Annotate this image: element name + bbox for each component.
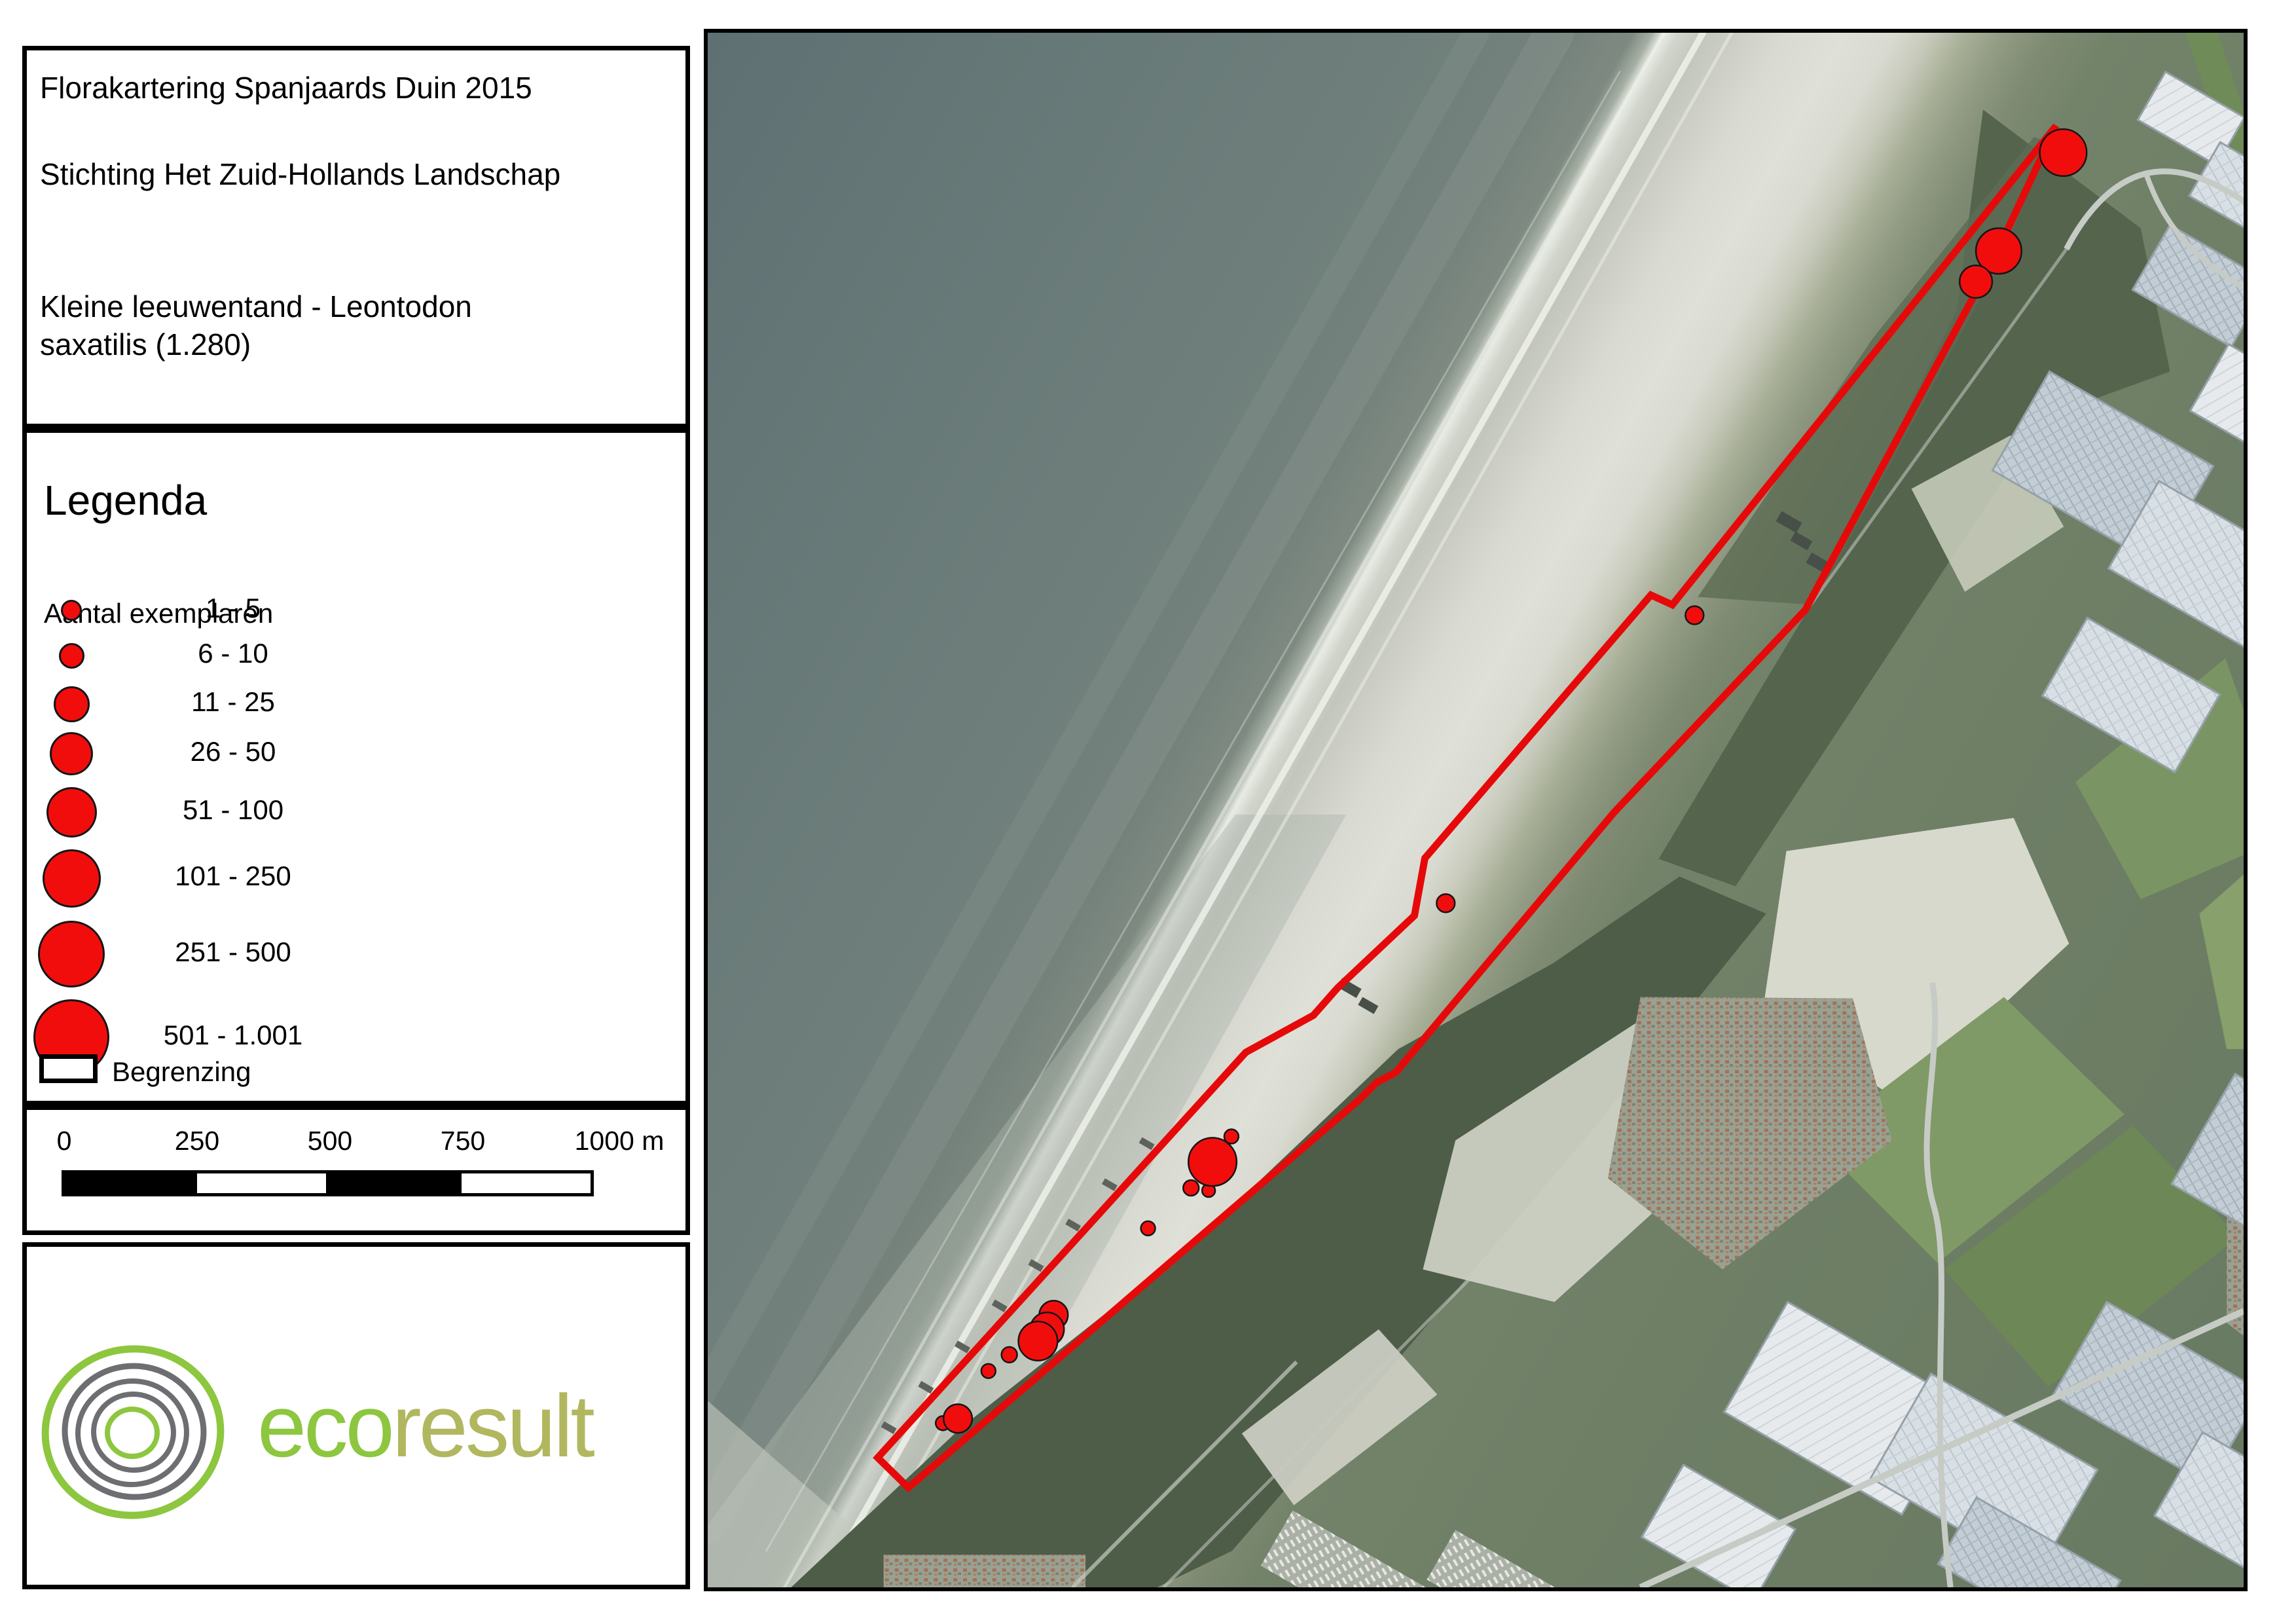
observation-dot <box>1002 1347 1017 1363</box>
logo-text-result: result <box>392 1376 592 1475</box>
observation-dot <box>1141 1221 1156 1236</box>
logo-box: ecoresult <box>22 1242 690 1589</box>
observation-dot <box>1959 265 1992 298</box>
observation-dot <box>1224 1130 1239 1144</box>
legend-dot <box>50 732 93 775</box>
legend-label: 101 - 250 <box>105 860 361 892</box>
map-sheet: Florakartering Spanjaards Duin 2015 Stic… <box>0 0 2296 1624</box>
project-title: Florakartering Spanjaards Duin 2015 <box>40 69 532 107</box>
legend-label: 51 - 100 <box>105 794 361 826</box>
legend-label: 501 - 1.001 <box>105 1020 361 1051</box>
legend-label: 11 - 25 <box>105 686 361 718</box>
organisation-name: Stichting Het Zuid-Hollands Landschap <box>40 155 560 193</box>
observation-dot <box>1436 894 1455 912</box>
scalebar-segment <box>326 1173 458 1193</box>
species-title-line2: saxatilis (1.280) <box>40 325 251 363</box>
observation-dot <box>1188 1137 1237 1186</box>
legend-dot <box>61 600 82 621</box>
legend-label: 26 - 50 <box>105 736 361 767</box>
scalebar-segment <box>458 1173 591 1193</box>
scalebar <box>62 1170 594 1196</box>
scalebar-segment <box>194 1173 326 1193</box>
legend-dot <box>43 849 101 908</box>
legend-dot <box>54 686 90 722</box>
boundary-label: Begrenzing <box>112 1056 251 1088</box>
observation-dot <box>981 1364 996 1378</box>
scalebar-tick-label: 0 <box>57 1126 72 1156</box>
legend-dot <box>59 643 84 669</box>
scalebar-segment <box>65 1173 194 1193</box>
observation-dot <box>1183 1180 1199 1196</box>
ecoresult-logo-text: ecoresult <box>257 1375 592 1477</box>
observation-dot <box>1019 1321 1058 1361</box>
observation-dot <box>943 1404 972 1433</box>
legend-dot <box>46 787 97 838</box>
scalebar-tick-label: 1000 m <box>575 1126 665 1156</box>
legend-label: 251 - 500 <box>105 936 361 968</box>
legend-label: 1 - 5 <box>105 593 361 624</box>
species-title-line1: Kleine leeuwentand - Leontodon <box>40 287 472 325</box>
logo-text-eco: eco <box>257 1376 392 1475</box>
legend-label: 6 - 10 <box>105 638 361 669</box>
title-box: Florakartering Spanjaards Duin 2015 Stic… <box>22 46 690 428</box>
scalebar-tick-label: 250 <box>175 1126 219 1156</box>
legend-box: Legenda Aantal exemplaren 1 - 56 - 1011 … <box>22 428 690 1105</box>
legend-dot <box>38 921 105 987</box>
boundary-swatch-icon <box>39 1054 98 1083</box>
scalebar-box: 02505007501000 m <box>22 1105 690 1235</box>
legend-title: Legenda <box>44 476 207 525</box>
aerial-basemap <box>708 33 2244 1587</box>
observation-dot <box>1685 606 1704 625</box>
map-box <box>704 29 2248 1591</box>
observation-dot <box>2040 129 2087 176</box>
scalebar-tick-label: 500 <box>308 1126 352 1156</box>
scalebar-tick-label: 750 <box>441 1126 485 1156</box>
